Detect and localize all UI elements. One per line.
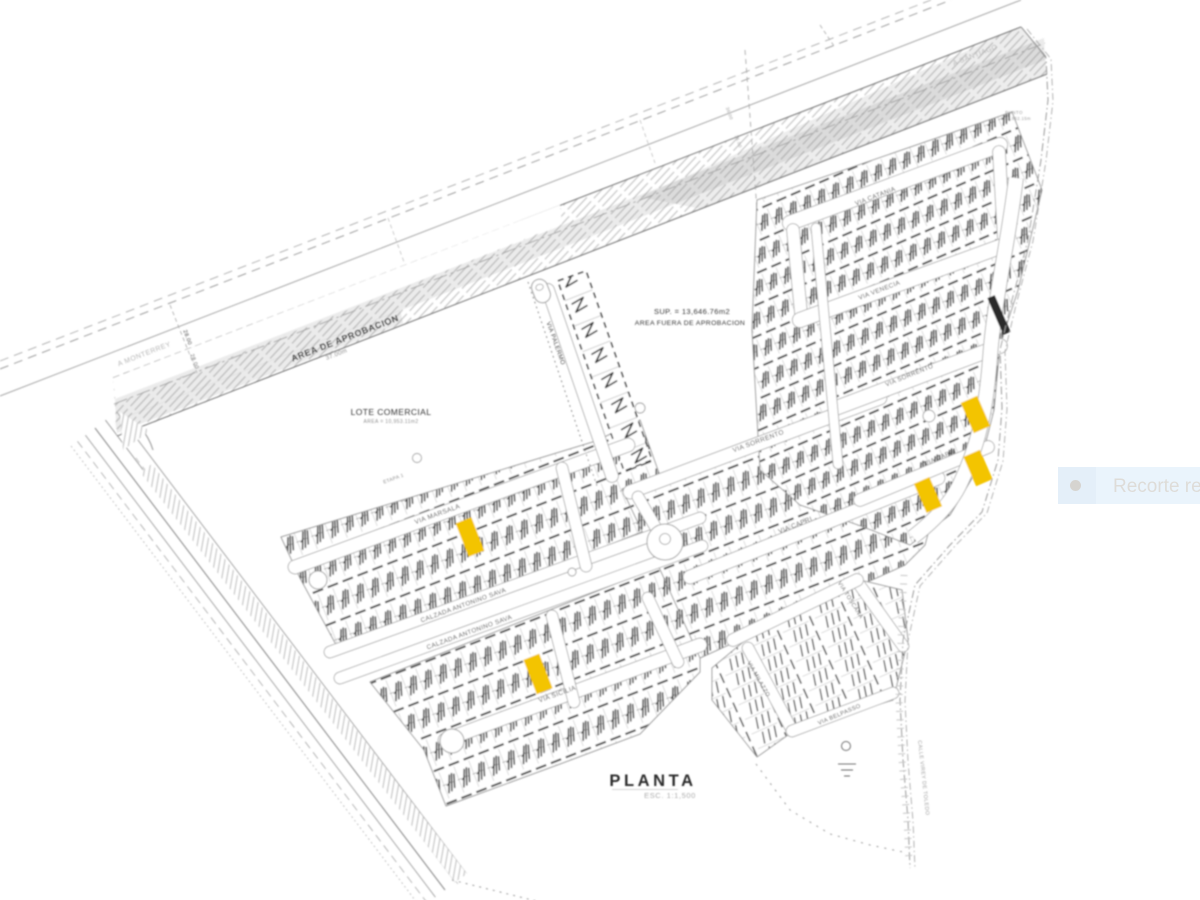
svg-text:36.00: 36.00	[725, 106, 734, 120]
svg-text:AREA = 10,953.11m2: AREA = 10,953.11m2	[363, 419, 418, 425]
svg-text:ESC. 1:1,500: ESC. 1:1,500	[644, 791, 696, 800]
svg-text:AREA FUERA DE APROBACION: AREA FUERA DE APROBACION	[635, 320, 745, 327]
svg-text:SUP. = 13,646.76m2: SUP. = 13,646.76m2	[654, 307, 730, 316]
svg-text:CALLE VIREY DE TOLEDO: CALLE VIREY DE TOLEDO	[916, 740, 930, 816]
svg-text:N=2,862.15m: N=2,862.15m	[1001, 116, 1031, 121]
svg-text:PUNTO: PUNTO	[1005, 110, 1023, 115]
svg-text:ETAPA 1: ETAPA 1	[383, 473, 405, 486]
svg-text:PLANTA: PLANTA	[609, 772, 696, 790]
svg-text:LOTE COMERCIAL: LOTE COMERCIAL	[351, 407, 432, 417]
